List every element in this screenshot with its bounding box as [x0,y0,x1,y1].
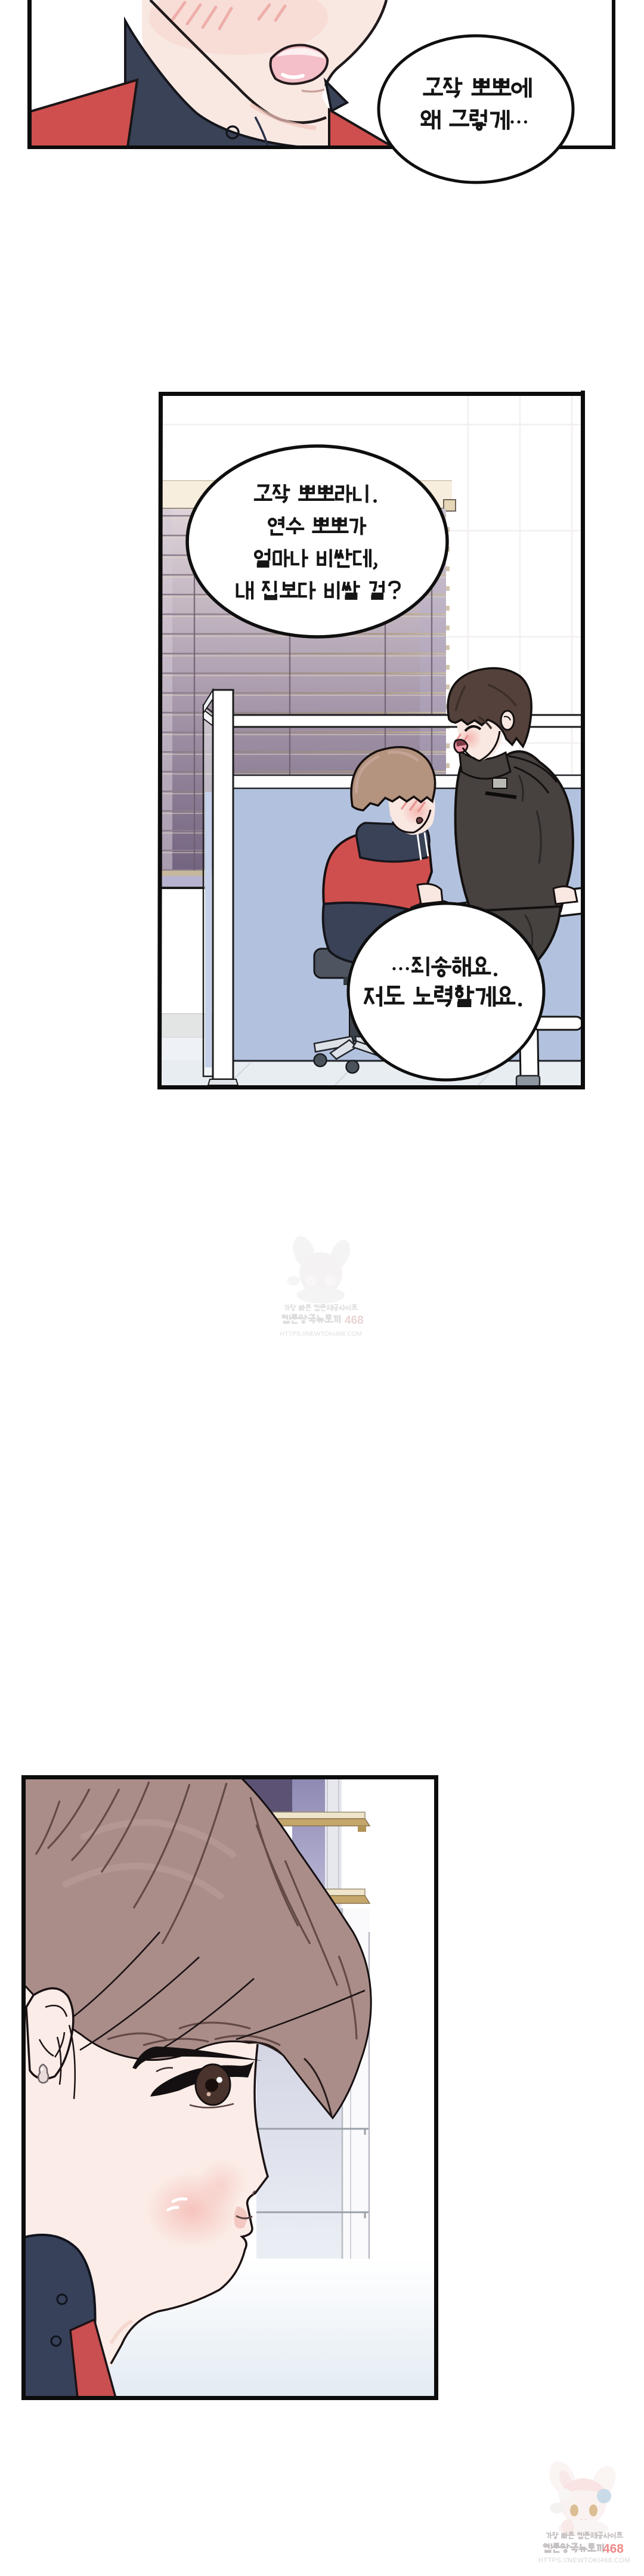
svg-text:468: 468 [603,2542,624,2556]
svg-text:HTTPS://NEWTOKI468.COM: HTTPS://NEWTOKI468.COM [280,1330,362,1337]
svg-text:HTTPS://NEWTOKI468.COM: HTTPS://NEWTOKI468.COM [538,2557,630,2564]
svg-text:468: 468 [345,1314,364,1327]
